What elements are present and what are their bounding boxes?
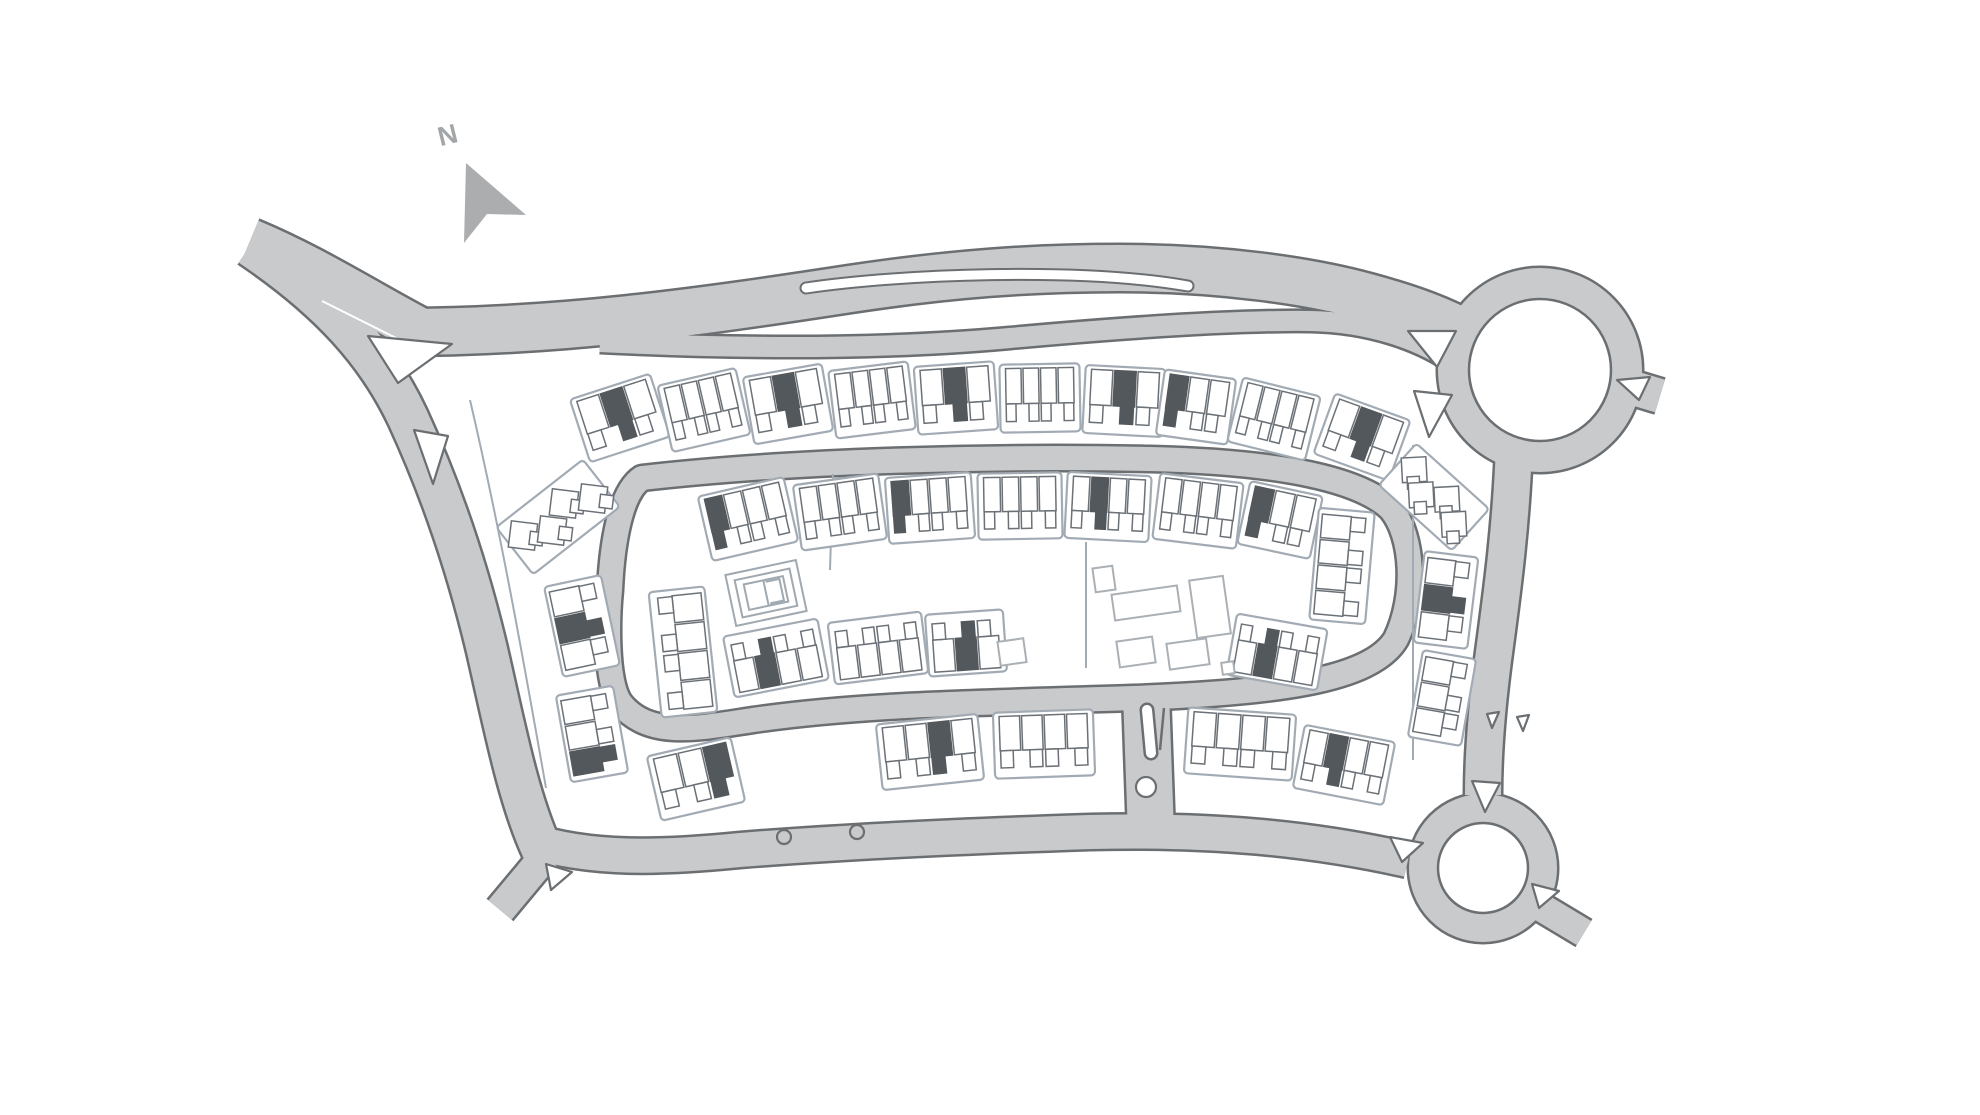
house-unit-highlighted bbox=[955, 637, 978, 671]
house-unit-highlighted bbox=[1090, 477, 1108, 512]
house-annex bbox=[558, 526, 573, 541]
house-unit bbox=[1198, 482, 1219, 518]
house-extension bbox=[600, 745, 617, 762]
parcel-north-outer-1 bbox=[570, 374, 670, 463]
house-unit bbox=[1422, 657, 1454, 686]
parcel-loop-west-terrace bbox=[649, 586, 718, 717]
house-extension bbox=[1327, 768, 1341, 787]
parcel-north-inner-5 bbox=[1064, 472, 1151, 542]
house-extension bbox=[1008, 511, 1019, 528]
house-extension bbox=[1223, 748, 1238, 766]
house-unit bbox=[1241, 715, 1266, 751]
house-extension bbox=[591, 694, 608, 711]
house-extension bbox=[1045, 511, 1056, 528]
house-unit-highlighted bbox=[928, 721, 952, 757]
house-extension bbox=[1451, 662, 1467, 679]
house-extension bbox=[801, 629, 816, 647]
parcel-loop-east-terrace bbox=[1309, 508, 1375, 624]
house-extension bbox=[1367, 776, 1381, 795]
house-extension bbox=[1447, 616, 1463, 633]
house-unit bbox=[1162, 478, 1183, 514]
house-unit-highlighted bbox=[570, 747, 604, 776]
house-unit bbox=[835, 372, 855, 409]
median-circle bbox=[1136, 777, 1156, 797]
house-extension bbox=[932, 512, 944, 530]
house-extension bbox=[1075, 748, 1088, 766]
house-extension bbox=[1245, 519, 1260, 538]
house-extension bbox=[1136, 407, 1150, 425]
house-extension bbox=[886, 761, 901, 779]
house-unit bbox=[837, 645, 860, 679]
parcel-north-inner-6 bbox=[1152, 473, 1243, 549]
house-unit-highlighted bbox=[555, 613, 590, 644]
house-unit bbox=[1109, 478, 1127, 513]
house-unit bbox=[878, 640, 901, 674]
house-extension bbox=[866, 512, 879, 530]
house-extension bbox=[1273, 525, 1288, 544]
house-unit bbox=[910, 479, 929, 514]
house-extension bbox=[731, 643, 746, 661]
house-extension bbox=[756, 413, 772, 433]
parcel-north-outer-3 bbox=[743, 364, 834, 445]
parcel-south-outer-5 bbox=[1293, 725, 1396, 805]
road-southwest-exit bbox=[500, 856, 545, 910]
house-extension bbox=[962, 753, 977, 771]
median-island bbox=[1147, 710, 1151, 753]
house-unit bbox=[983, 477, 1000, 512]
house-unit bbox=[1265, 717, 1290, 753]
house-unit bbox=[561, 639, 596, 670]
house-extension bbox=[1272, 752, 1287, 770]
house-extension bbox=[1442, 713, 1458, 730]
house-extension bbox=[1220, 519, 1232, 537]
house-unit-highlighted bbox=[1422, 585, 1453, 614]
house-extension bbox=[953, 403, 967, 422]
house-extension bbox=[1265, 629, 1279, 647]
house-unit bbox=[978, 635, 1001, 669]
parcel-north-outer-7 bbox=[1082, 365, 1165, 437]
house-extension bbox=[1196, 516, 1208, 534]
house-extension bbox=[932, 623, 946, 640]
house-unit bbox=[1072, 476, 1090, 511]
house-unit bbox=[549, 586, 584, 617]
house-extension bbox=[694, 782, 712, 802]
parcel-south-inner-1 bbox=[723, 618, 829, 697]
house-extension bbox=[1239, 624, 1253, 642]
house-extension bbox=[1301, 763, 1315, 782]
house-unit bbox=[1413, 708, 1445, 737]
house-extension bbox=[579, 583, 597, 601]
house-unit bbox=[1022, 715, 1044, 750]
house-extension bbox=[802, 405, 818, 425]
house-extension bbox=[1071, 510, 1082, 528]
house-extension bbox=[1305, 636, 1319, 654]
house-extension bbox=[923, 405, 937, 424]
house-extension bbox=[1041, 403, 1051, 421]
house-unit-highlighted bbox=[891, 480, 910, 515]
house-extension bbox=[1454, 562, 1470, 579]
house-unit bbox=[899, 638, 922, 672]
house-extension bbox=[1279, 631, 1293, 649]
kerb-bump bbox=[777, 830, 791, 844]
parcel-north-inner-7 bbox=[1237, 481, 1323, 559]
community-building-annex-nw bbox=[1092, 566, 1115, 593]
house-extension bbox=[916, 757, 931, 775]
house-unit bbox=[951, 718, 975, 754]
house-extension bbox=[596, 727, 613, 744]
house-unit bbox=[858, 643, 881, 677]
house-extension bbox=[662, 789, 680, 809]
house-extension bbox=[1029, 403, 1039, 421]
parcel-north-inner-4 bbox=[977, 472, 1062, 539]
parcel-north-outer-8 bbox=[1156, 369, 1236, 444]
parcel-north-outer-4 bbox=[828, 361, 916, 438]
house-unit bbox=[1136, 372, 1159, 408]
house-unit bbox=[1058, 367, 1074, 403]
parcel-south-outer-2 bbox=[876, 714, 984, 790]
house-extension bbox=[1240, 749, 1255, 767]
house-extension bbox=[1204, 414, 1218, 433]
house-unit bbox=[1127, 479, 1145, 514]
house-unit bbox=[1425, 557, 1456, 586]
house-extension bbox=[661, 634, 677, 652]
house-extension bbox=[1108, 512, 1119, 530]
house-extension bbox=[894, 515, 906, 533]
house-extension bbox=[586, 618, 604, 636]
house-unit bbox=[678, 650, 710, 680]
house-extension bbox=[711, 778, 729, 798]
house-extension bbox=[1350, 517, 1366, 532]
house-unit bbox=[948, 476, 967, 511]
house-unit bbox=[933, 639, 956, 673]
house-extension bbox=[835, 630, 849, 647]
house-extension bbox=[839, 408, 851, 427]
house-unit bbox=[929, 478, 948, 513]
house-extension bbox=[969, 402, 983, 421]
house-unit bbox=[1066, 713, 1088, 748]
parcel-south-inner-2 bbox=[828, 612, 929, 685]
house-unit bbox=[1005, 368, 1021, 404]
house-annex bbox=[599, 494, 614, 509]
house-extension bbox=[1341, 770, 1355, 789]
house-unit bbox=[869, 368, 889, 405]
parcel-south-outer-3 bbox=[993, 709, 1095, 778]
house-extension bbox=[1132, 514, 1143, 532]
parcel-north-inner-2 bbox=[793, 473, 887, 550]
house-unit bbox=[882, 726, 906, 762]
house-extension bbox=[1160, 512, 1172, 530]
house-unit-highlighted bbox=[1113, 370, 1136, 406]
house-extension bbox=[1001, 750, 1014, 768]
house-unit bbox=[1192, 712, 1217, 748]
house-extension bbox=[1346, 568, 1362, 583]
community-building-tower bbox=[1189, 576, 1231, 638]
house-extension bbox=[1287, 528, 1302, 547]
site-plan-svg bbox=[0, 0, 1980, 1115]
community-building-kiosk bbox=[1221, 661, 1235, 675]
parcel-south-inner-3 bbox=[925, 609, 1007, 676]
roundabout-island-north bbox=[1469, 299, 1611, 441]
house-unit bbox=[1417, 682, 1449, 711]
house-extension bbox=[932, 756, 947, 774]
house-unit bbox=[1318, 540, 1349, 566]
house-unit bbox=[1020, 477, 1037, 512]
house-unit bbox=[672, 593, 704, 623]
house-unit bbox=[967, 366, 991, 403]
house-extension bbox=[1191, 746, 1206, 764]
house-extension bbox=[896, 401, 908, 420]
north-arrow-icon bbox=[464, 163, 526, 243]
play-area bbox=[725, 560, 806, 626]
house-unit bbox=[887, 366, 907, 403]
house-unit bbox=[1316, 565, 1347, 591]
house-extension bbox=[773, 634, 788, 652]
parcel-south-outer-1 bbox=[647, 737, 746, 821]
house-unit bbox=[1180, 480, 1201, 516]
parcel-north-outer-9 bbox=[1227, 377, 1321, 460]
house-extension bbox=[1021, 511, 1032, 528]
house-unit bbox=[1090, 369, 1113, 405]
house-unit bbox=[675, 622, 707, 652]
parcel-north-outer-6 bbox=[999, 363, 1080, 432]
parcel-north-inner-3 bbox=[885, 472, 975, 544]
parcel-east-terrace-1 bbox=[1414, 551, 1479, 649]
roundabout-island-south bbox=[1438, 823, 1528, 913]
house-unit bbox=[905, 723, 929, 759]
house-extension bbox=[1064, 403, 1074, 421]
house-extension bbox=[918, 513, 930, 531]
house-unit bbox=[1206, 380, 1229, 417]
house-extension bbox=[862, 405, 874, 424]
house-extension bbox=[1450, 597, 1466, 614]
house-extension bbox=[1120, 406, 1134, 424]
community-building-annex-s1 bbox=[1116, 637, 1155, 668]
house-extension bbox=[668, 692, 684, 710]
house-extension bbox=[877, 625, 891, 642]
house-unit bbox=[1320, 514, 1351, 540]
house-extension bbox=[1046, 749, 1059, 767]
house-extension bbox=[786, 408, 802, 428]
house-unit bbox=[681, 679, 713, 709]
house-unit bbox=[1186, 377, 1209, 414]
house-extension bbox=[1343, 601, 1359, 616]
house-unit bbox=[852, 370, 872, 407]
house-extension bbox=[874, 404, 886, 423]
house-annex bbox=[1447, 531, 1460, 544]
house-unit bbox=[1040, 368, 1056, 404]
kerb-bump bbox=[850, 825, 864, 839]
house-extension bbox=[829, 517, 842, 535]
community-building-hall bbox=[1112, 586, 1181, 621]
house-extension bbox=[961, 621, 975, 638]
house-extension bbox=[1190, 412, 1204, 431]
traffic-island-east-link-notch-b bbox=[1517, 715, 1529, 731]
house-unit-highlighted bbox=[943, 367, 967, 404]
house-unit bbox=[999, 716, 1021, 751]
house-extension bbox=[1445, 695, 1461, 712]
house-unit bbox=[1002, 477, 1019, 512]
house-unit bbox=[1023, 368, 1039, 404]
house-unit bbox=[1216, 713, 1241, 749]
parcel-north-outer-5 bbox=[914, 361, 999, 434]
house-extension bbox=[804, 521, 817, 539]
house-extension bbox=[1163, 408, 1177, 427]
house-extension bbox=[1030, 749, 1043, 767]
house-unit bbox=[561, 696, 595, 725]
site-plan: N bbox=[0, 0, 1980, 1115]
house-annex bbox=[1414, 501, 1427, 514]
house-unit bbox=[920, 369, 944, 406]
house-extension bbox=[758, 637, 773, 655]
house-extension bbox=[1006, 404, 1016, 422]
house-extension bbox=[956, 511, 968, 529]
house-unit bbox=[1039, 476, 1056, 511]
house-extension bbox=[1095, 512, 1106, 530]
community-building-annex-w bbox=[997, 638, 1026, 665]
house-extension bbox=[862, 627, 876, 644]
house-unit bbox=[1418, 612, 1449, 641]
house-extension bbox=[664, 654, 680, 672]
house-unit-highlighted bbox=[1166, 374, 1189, 411]
house-extension bbox=[1347, 550, 1363, 565]
house-extension bbox=[658, 597, 674, 615]
house-extension bbox=[842, 516, 855, 534]
house-extension bbox=[1089, 405, 1103, 423]
parcel-south-outer-4 bbox=[1184, 707, 1296, 780]
house-extension bbox=[590, 637, 608, 655]
house-extension bbox=[984, 512, 995, 529]
house-unit bbox=[1217, 485, 1238, 521]
community-building-annex-s2 bbox=[1166, 638, 1209, 669]
house-unit bbox=[1314, 590, 1345, 616]
house-extension bbox=[977, 620, 991, 637]
house-extension bbox=[1184, 515, 1196, 533]
road-east-link bbox=[1483, 446, 1514, 795]
house-unit bbox=[1044, 714, 1066, 749]
house-extension bbox=[904, 622, 918, 639]
parcel-north-inner-1 bbox=[698, 477, 799, 561]
parcel-north-outer-2 bbox=[657, 368, 750, 452]
house-unit bbox=[565, 721, 599, 750]
